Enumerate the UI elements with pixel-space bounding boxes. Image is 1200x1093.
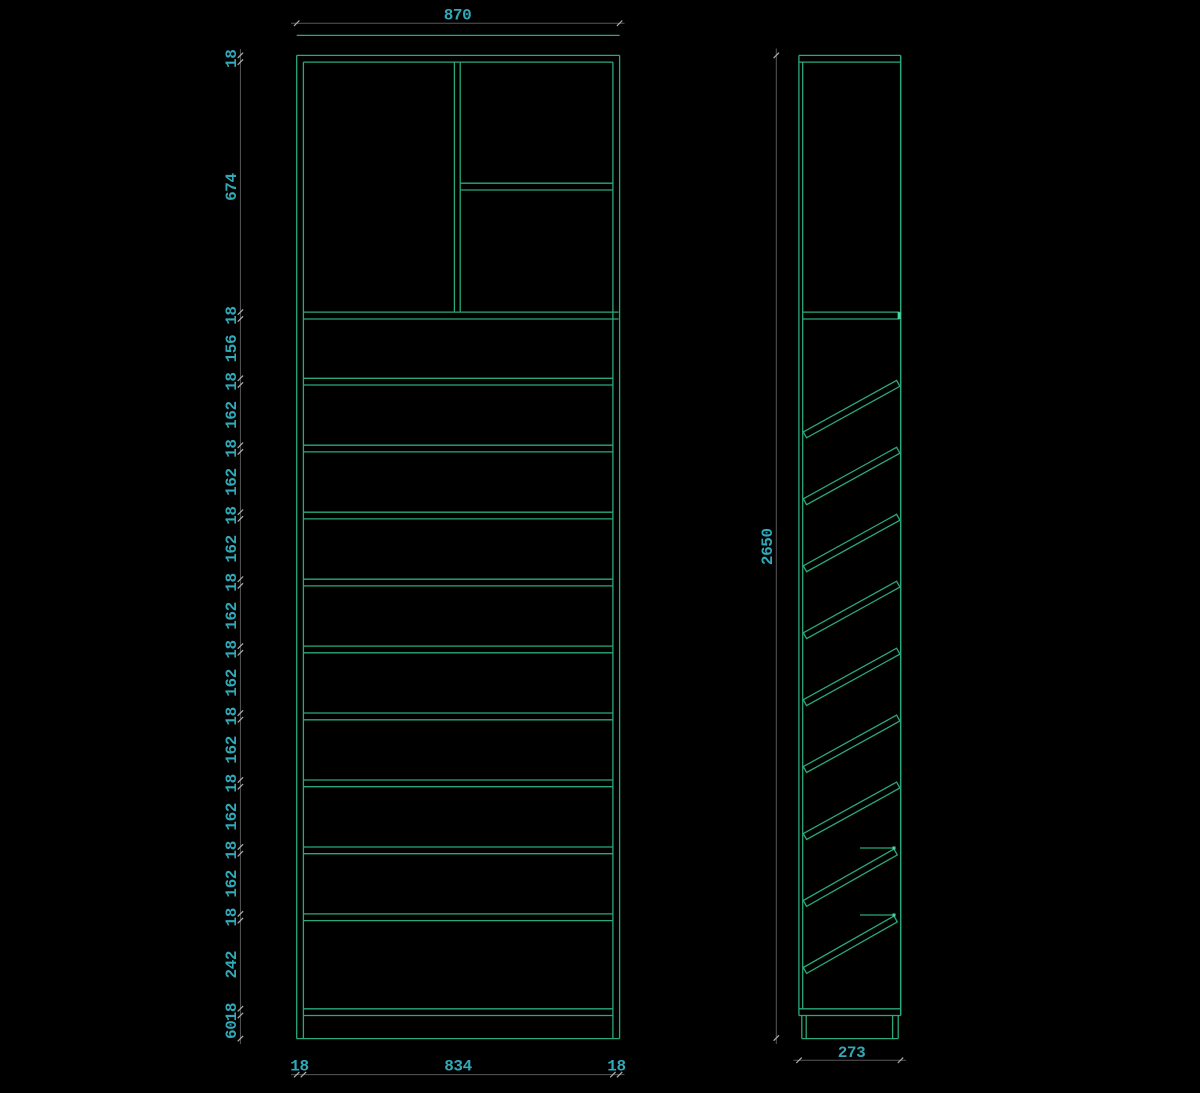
svg-text:60: 60	[223, 1021, 241, 1039]
svg-text:162: 162	[223, 669, 241, 697]
svg-text:162: 162	[223, 401, 241, 429]
svg-text:18: 18	[223, 908, 241, 926]
svg-text:18: 18	[223, 573, 241, 591]
svg-text:870: 870	[444, 7, 472, 25]
svg-text:18: 18	[223, 50, 241, 68]
svg-text:18: 18	[223, 640, 241, 658]
svg-text:18: 18	[223, 439, 241, 457]
svg-text:18: 18	[290, 1058, 308, 1076]
svg-text:18: 18	[223, 506, 241, 524]
svg-text:162: 162	[223, 736, 241, 764]
svg-text:18: 18	[223, 707, 241, 725]
svg-text:18: 18	[223, 372, 241, 390]
svg-text:18: 18	[607, 1058, 625, 1076]
svg-text:834: 834	[444, 1058, 472, 1076]
svg-text:242: 242	[223, 951, 241, 979]
svg-text:162: 162	[223, 803, 241, 831]
svg-text:156: 156	[223, 335, 241, 363]
svg-text:18: 18	[223, 306, 241, 324]
svg-text:273: 273	[838, 1044, 866, 1062]
svg-text:674: 674	[223, 173, 241, 201]
svg-text:162: 162	[223, 602, 241, 630]
svg-text:18: 18	[223, 1003, 241, 1021]
svg-text:162: 162	[223, 468, 241, 496]
svg-text:162: 162	[223, 870, 241, 898]
svg-text:2650: 2650	[759, 528, 777, 565]
svg-text:18: 18	[223, 774, 241, 792]
svg-text:18: 18	[223, 841, 241, 859]
svg-text:162: 162	[223, 535, 241, 563]
